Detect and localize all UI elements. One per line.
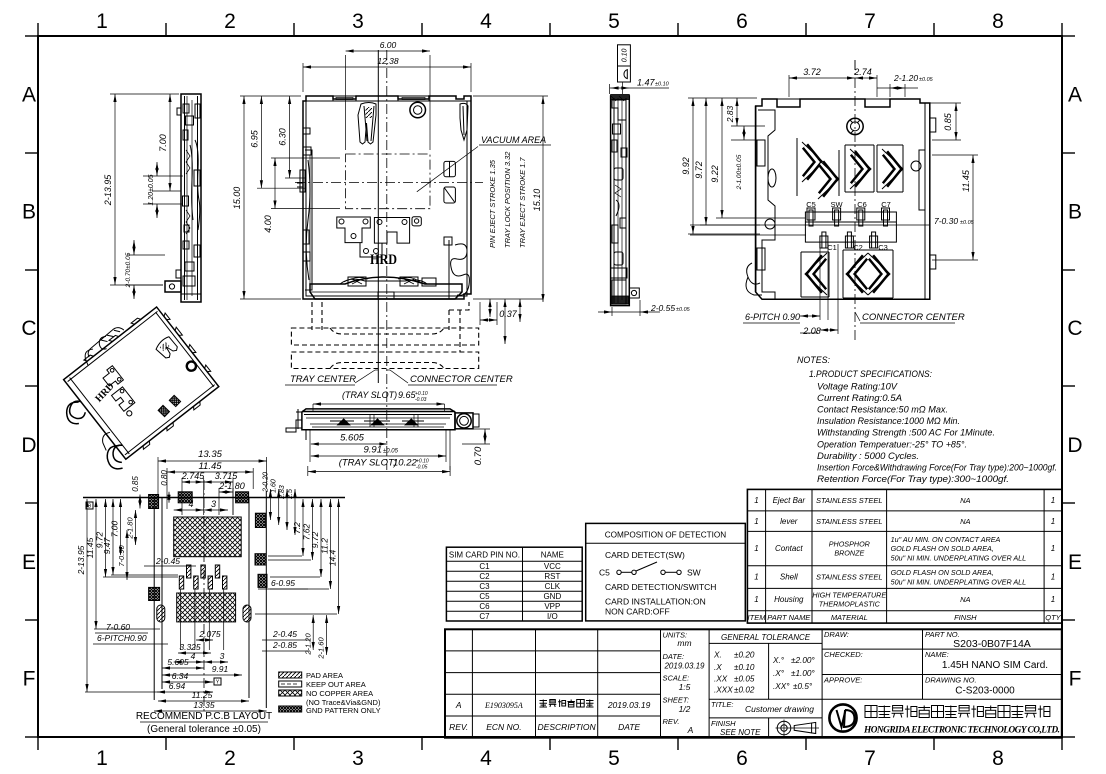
svg-text:11.45: 11.45 (85, 537, 95, 558)
svg-text:TRAY LOCK POSITION 3.32: TRAY LOCK POSITION 3.32 (503, 151, 512, 248)
svg-text:CARD DETECT(SW): CARD DETECT(SW) (605, 550, 685, 560)
svg-text:Operation Temperatuer:-25° T: Operation Temperatuer:-25° TO +85°. (817, 439, 967, 450)
svg-text:TRAY EJECT STROKE 1.7: TRAY EJECT STROKE 1.7 (518, 157, 527, 248)
svg-text:B: B (1068, 200, 1082, 223)
svg-text:(TRAY SLOT): (TRAY SLOT) (339, 458, 397, 469)
svg-text:13.35: 13.35 (198, 449, 222, 460)
svg-text:NAME:: NAME: (925, 650, 949, 659)
svg-text:STAINLESS STEEL: STAINLESS STEEL (816, 517, 883, 526)
svg-text:NA: NA (960, 595, 970, 604)
svg-text:2-1.00±0.05: 2-1.00±0.05 (736, 154, 743, 190)
svg-text:FINSH: FINSH (954, 613, 977, 622)
svg-text:VCC: VCC (544, 562, 561, 571)
svg-text:0.85: 0.85 (943, 112, 953, 131)
svg-text:4: 4 (480, 10, 492, 33)
svg-text:11.45: 11.45 (961, 169, 971, 192)
svg-text:C5: C5 (806, 200, 816, 209)
svg-text:APPROVE:: APPROVE: (823, 676, 862, 685)
svg-text:±0.05: ±0.05 (676, 307, 691, 313)
svg-text:COMPOSITION OF DETECTION: COMPOSITION OF DETECTION (605, 531, 727, 540)
svg-text:2019.03.19: 2019.03.19 (663, 662, 705, 671)
svg-text:A: A (687, 725, 694, 735)
svg-text:9.72: 9.72 (310, 531, 320, 548)
svg-text:2.83: 2.83 (279, 485, 286, 500)
svg-text:15.10: 15.10 (532, 189, 542, 212)
svg-text:2-1.80: 2-1.80 (126, 517, 135, 540)
svg-text:1: 1 (754, 496, 758, 505)
svg-text:SEE NOTE: SEE NOTE (720, 728, 761, 737)
svg-text:SW: SW (687, 568, 701, 578)
svg-text:NOTES:: NOTES: (797, 355, 830, 366)
svg-text:2.74: 2.74 (853, 67, 872, 77)
svg-text:7: 7 (864, 10, 876, 33)
svg-text:6: 6 (736, 747, 748, 770)
svg-text:QTY: QTY (1045, 613, 1061, 622)
svg-text:1: 1 (1051, 496, 1055, 505)
svg-text:NA: NA (960, 517, 970, 526)
svg-text:1: 1 (754, 517, 758, 526)
svg-text:8: 8 (992, 747, 1004, 770)
svg-text:1u" AU MIN. ON CONTACT AR: 1u" AU MIN. ON CONTACT AREA (891, 535, 1001, 544)
svg-text:I/O: I/O (547, 612, 558, 621)
svg-text:4.00: 4.00 (263, 215, 273, 233)
svg-text:THERMOPLASTIC: THERMOPLASTIC (819, 600, 881, 609)
svg-text:ECN NO.: ECN NO. (486, 722, 521, 732)
svg-text:.XX: .XX (714, 675, 728, 684)
svg-text:lever: lever (780, 517, 798, 526)
svg-text:1/2: 1/2 (679, 704, 691, 714)
svg-text:BRONZE: BRONZE (834, 549, 864, 558)
svg-text:C3: C3 (479, 582, 490, 591)
svg-text:±0.05: ±0.05 (734, 675, 755, 684)
svg-text:5.605: 5.605 (340, 433, 364, 444)
svg-text:6.00: 6.00 (380, 40, 397, 50)
svg-text:5: 5 (608, 10, 620, 33)
svg-text:±0.05: ±0.05 (960, 220, 975, 226)
svg-text:DRAWING NO.: DRAWING NO. (925, 676, 977, 685)
svg-text:1: 1 (754, 544, 758, 553)
svg-text:PIN EJECT STROKE 1.35: PIN EJECT STROKE 1.35 (488, 159, 497, 248)
svg-text:C6: C6 (857, 200, 867, 209)
svg-text:NA: NA (960, 496, 970, 505)
svg-text:Customer drawing: Customer drawing (745, 704, 814, 714)
svg-text:±2.00°: ±2.00° (791, 656, 815, 665)
svg-text:3: 3 (352, 10, 364, 33)
svg-text:D: D (21, 434, 36, 457)
svg-text:0.70: 0.70 (473, 446, 484, 465)
svg-text:2-0.85: 2-0.85 (272, 640, 297, 650)
svg-text:Withstanding Strength :500: Withstanding Strength :500 AC For 1Minut… (817, 428, 995, 439)
svg-text:STAINLESS STEEL: STAINLESS STEEL (816, 573, 883, 582)
svg-text:E1903095A: E1903095A (484, 701, 523, 710)
svg-text:-0.03: -0.03 (415, 397, 427, 403)
svg-text:3.72: 3.72 (803, 67, 821, 77)
svg-text:C7: C7 (881, 200, 891, 209)
svg-text:±1.00°: ±1.00° (791, 669, 815, 678)
svg-text:C5: C5 (479, 592, 490, 601)
svg-text:Housing: Housing (774, 595, 804, 604)
svg-text:Voltage Rating:10V: Voltage Rating:10V (817, 382, 899, 393)
svg-text:3: 3 (352, 747, 364, 770)
svg-text:12.38: 12.38 (377, 56, 399, 66)
svg-text:50u" NI MIN. UNDERPLATING: 50u" NI MIN. UNDERPLATING OVER ALL (891, 553, 1027, 562)
svg-text:DESCRIPTION: DESCRIPTION (538, 722, 597, 732)
svg-text:C: C (21, 317, 36, 340)
svg-text:9.47: 9.47 (102, 537, 112, 554)
svg-text:7.00: 7.00 (158, 134, 168, 152)
svg-text:TITLE:: TITLE: (711, 700, 734, 709)
svg-text:2-0.55: 2-0.55 (650, 303, 675, 313)
svg-text:CARD INSTALLATION:ON: CARD INSTALLATION:ON (605, 597, 706, 607)
svg-text:(General tolerance ±0.05): (General tolerance ±0.05) (147, 724, 261, 735)
svg-text:1.60: 1.60 (271, 479, 278, 493)
svg-text:F: F (1069, 668, 1082, 691)
svg-text:A: A (455, 700, 462, 710)
svg-text:3.715: 3.715 (215, 471, 239, 481)
svg-text:3: 3 (211, 499, 216, 509)
svg-text:2-0.20: 2-0.20 (263, 472, 270, 493)
svg-text:GOLD FLASH ON SOLD AREA,: GOLD FLASH ON SOLD AREA, (891, 568, 994, 577)
svg-text:C7: C7 (479, 612, 490, 621)
svg-text:GND: GND (543, 592, 561, 601)
svg-text:TRAY CENTER: TRAY CENTER (290, 374, 356, 385)
svg-text:CARD DETECTION/SWITCH: CARD DETECTION/SWITCH (605, 582, 716, 592)
svg-text:VPP: VPP (544, 602, 560, 611)
svg-text:5.605: 5.605 (167, 657, 189, 667)
svg-text:15.00: 15.00 (232, 187, 242, 210)
svg-text:CLK: CLK (545, 582, 561, 591)
svg-text:Eject Bar: Eject Bar (773, 496, 806, 505)
svg-text:-0.05: -0.05 (416, 465, 428, 471)
svg-text:6.30: 6.30 (278, 128, 288, 146)
svg-text:7-0.30: 7-0.30 (934, 216, 958, 226)
svg-text:E: E (1068, 551, 1082, 574)
svg-text:2-13.95: 2-13.95 (103, 174, 113, 207)
svg-text:6.94: 6.94 (169, 681, 186, 691)
svg-text:6-PITCH 0.90: 6-PITCH 0.90 (745, 312, 800, 322)
svg-text:PART NAME: PART NAME (767, 613, 811, 622)
svg-text:SIM CARD PIN NO.: SIM CARD PIN NO. (449, 551, 520, 560)
svg-text:±0.10: ±0.10 (734, 663, 755, 672)
svg-text:6.95: 6.95 (250, 129, 260, 148)
svg-text:HRD: HRD (370, 252, 397, 268)
svg-text:GND PATTERN ONLY: GND PATTERN ONLY (306, 706, 381, 715)
svg-text:2: 2 (224, 747, 236, 770)
svg-text:X.°: X.° (772, 656, 785, 665)
svg-text:.XXX: .XXX (714, 686, 733, 695)
svg-text:DATE: DATE (618, 722, 640, 732)
svg-text:8: 8 (992, 10, 1004, 33)
svg-text:2-0.45: 2-0.45 (272, 629, 297, 639)
svg-text:1: 1 (1051, 517, 1055, 526)
svg-text:PAD AREA: PAD AREA (306, 671, 343, 680)
svg-text:2.5: 2.5 (287, 489, 294, 500)
svg-text:2.075: 2.075 (198, 629, 221, 639)
svg-text:SW: SW (831, 200, 844, 209)
svg-text:2.08: 2.08 (802, 326, 821, 336)
svg-text:9.91: 9.91 (212, 664, 229, 674)
svg-text:X.: X. (713, 650, 722, 659)
svg-text:C: C (1067, 317, 1082, 340)
svg-text:CONNECTOR CENTER: CONNECTOR CENTER (862, 312, 965, 323)
svg-text:1: 1 (1051, 544, 1055, 553)
svg-text:2-1.20: 2-1.20 (304, 633, 313, 656)
svg-text:±0.05: ±0.05 (919, 77, 934, 83)
svg-text:A: A (1068, 84, 1082, 107)
svg-text:0.37: 0.37 (499, 309, 518, 319)
svg-text:14.4: 14.4 (328, 549, 338, 566)
svg-text:FINISH: FINISH (711, 719, 736, 728)
svg-text:2019.03.19: 2019.03.19 (607, 700, 651, 710)
svg-text:11.25: 11.25 (192, 690, 213, 700)
svg-text:Insertion Force&Withdrawing: Insertion Force&Withdrawing Force(For Tr… (817, 462, 1057, 473)
svg-text:1.45H NANO SIM Card.: 1.45H NANO SIM Card. (942, 660, 1048, 671)
svg-text:±0.5°: ±0.5° (793, 682, 813, 691)
svg-text:C6: C6 (479, 602, 490, 611)
svg-text:1: 1 (96, 10, 108, 33)
svg-text:2: 2 (224, 10, 236, 33)
svg-text:B: B (22, 200, 36, 223)
svg-text:GOLD FLASH ON SOLD AREA,: GOLD FLASH ON SOLD AREA, (891, 544, 994, 553)
svg-text:HONGRIDA ELECTRONIC TECHNOLO: HONGRIDA ELECTRONIC TECHNOLOGY CO,LTD. (863, 726, 1060, 736)
svg-text:ITEM: ITEM (748, 613, 767, 622)
svg-text:7-0.90: 7-0.90 (117, 545, 126, 567)
svg-text:NON CARD:OFF: NON CARD:OFF (605, 607, 670, 617)
svg-text:DRAW:: DRAW: (824, 630, 849, 639)
svg-text:RECOMMEND P.C.B LAYOUT: RECOMMEND P.C.B LAYOUT (136, 711, 272, 722)
svg-text:CONNECTOR CENTER: CONNECTOR CENTER (410, 374, 513, 385)
svg-text:Contact: Contact (775, 544, 803, 553)
svg-text:2-1.80: 2-1.80 (218, 481, 245, 491)
svg-text:2-0.45: 2-0.45 (155, 556, 180, 566)
svg-text:6: 6 (736, 10, 748, 33)
svg-text:9.91: 9.91 (364, 444, 383, 455)
svg-text:Contact Resistance:50 mΩ Ma: Contact Resistance:50 mΩ Max. (817, 405, 948, 416)
svg-text:REV.: REV. (663, 717, 680, 726)
svg-text:E: E (22, 551, 36, 574)
svg-text:NAME: NAME (541, 551, 564, 560)
svg-text:1: 1 (96, 747, 108, 770)
svg-text:C1: C1 (479, 562, 490, 571)
svg-text:±0.10: ±0.10 (655, 82, 670, 88)
svg-text:7: 7 (864, 747, 876, 770)
svg-text:Shell: Shell (780, 573, 798, 582)
svg-text:2.83: 2.83 (725, 105, 735, 123)
svg-text:.XX°: .XX° (773, 682, 790, 691)
svg-text:±0.20: ±0.20 (734, 650, 755, 659)
svg-text:7.00: 7.00 (110, 520, 120, 537)
svg-text:S203-0B07F14A: S203-0B07F14A (953, 638, 1031, 650)
svg-text:6.34: 6.34 (172, 671, 189, 681)
svg-text:D: D (1067, 434, 1082, 457)
svg-text:2-0.70±0.05: 2-0.70±0.05 (125, 252, 132, 288)
svg-text:1: 1 (754, 595, 758, 604)
svg-text:4: 4 (191, 651, 196, 661)
svg-text:1:5: 1:5 (679, 682, 691, 692)
svg-text:1: 1 (754, 573, 758, 582)
svg-text:GENERAL TOLERANCE: GENERAL TOLERANCE (721, 633, 811, 642)
svg-text:A: A (22, 84, 36, 107)
svg-text:.X: .X (714, 663, 722, 672)
svg-text:HIGH TEMPERATURE: HIGH TEMPERATURE (812, 591, 886, 600)
svg-text:6-0.95: 6-0.95 (271, 578, 295, 588)
svg-text:7-0.60: 7-0.60 (106, 622, 130, 632)
svg-text:C1: C1 (827, 243, 837, 252)
svg-text:1.PRODUCT SPECIFICATIONS:: 1.PRODUCT SPECIFICATIONS: (809, 369, 932, 380)
svg-text:0.80: 0.80 (160, 470, 169, 486)
svg-text:Retention Force(For Tray ty: Retention Force(For Tray type):300~1000g… (817, 474, 1009, 485)
svg-text:C-S203-0000: C-S203-0000 (955, 686, 1015, 697)
svg-text:0.10: 0.10 (622, 48, 629, 62)
svg-text:9.72: 9.72 (694, 161, 704, 179)
svg-text:KEEP OUT AREA: KEEP OUT AREA (306, 680, 366, 689)
svg-text:REV.: REV. (449, 722, 468, 732)
svg-text:±0.02: ±0.02 (734, 686, 755, 695)
svg-text:13.35: 13.35 (193, 700, 215, 710)
svg-text:6-PITCH0.90: 6-PITCH0.90 (97, 633, 147, 643)
svg-text:1.20±0.05: 1.20±0.05 (148, 174, 155, 205)
svg-text:C5: C5 (599, 568, 610, 578)
svg-text:9.92: 9.92 (681, 157, 691, 175)
svg-text:1: 1 (1051, 573, 1055, 582)
svg-text:STAINLESS STEEL: STAINLESS STEEL (816, 496, 883, 505)
svg-text:10.22: 10.22 (393, 458, 417, 469)
svg-text:F: F (23, 668, 36, 691)
svg-text:9.65: 9.65 (398, 390, 417, 400)
svg-text:3: 3 (220, 651, 225, 661)
svg-text:C3: C3 (878, 243, 888, 252)
svg-text:DATE:: DATE: (663, 652, 685, 661)
svg-text:4: 4 (188, 499, 193, 509)
svg-text:4: 4 (480, 747, 492, 770)
svg-text:VACUUM AREA: VACUUM AREA (481, 135, 546, 145)
svg-text:C2: C2 (479, 572, 490, 581)
svg-text:MATERIAL: MATERIAL (831, 613, 868, 622)
svg-text:(TRAY SLOT): (TRAY SLOT) (342, 390, 397, 400)
svg-text:9.22: 9.22 (710, 165, 720, 183)
svg-text:50u" NI MIN. UNDERPLATING: 50u" NI MIN. UNDERPLATING OVER ALL (891, 577, 1027, 586)
svg-text:±0.05: ±0.05 (383, 448, 399, 454)
svg-text:mm: mm (677, 638, 691, 648)
svg-text:0.85: 0.85 (131, 476, 140, 492)
svg-text:2.745: 2.745 (181, 471, 206, 481)
svg-text:Durability : 5000 Cycles.: Durability : 5000 Cycles. (817, 451, 919, 462)
svg-text:NO COPPER AREA: NO COPPER AREA (306, 689, 373, 698)
svg-text:2-1.60: 2-1.60 (317, 637, 326, 660)
svg-text:Insulation Resistance:1000 M: Insulation Resistance:1000 MΩ Min. (817, 416, 960, 427)
svg-text:.X°: .X° (773, 669, 785, 678)
svg-text:RST: RST (544, 572, 560, 581)
svg-text:2-1.20: 2-1.20 (893, 73, 918, 83)
svg-text:Current Rating:0.5A: Current Rating:0.5A (817, 393, 902, 404)
svg-text:PHOSPHOR: PHOSPHOR (829, 540, 870, 549)
svg-text:CHECKED:: CHECKED: (824, 650, 863, 659)
svg-text:5: 5 (608, 747, 620, 770)
svg-text:1.47: 1.47 (637, 78, 656, 88)
svg-text:7.2: 7.2 (292, 522, 302, 534)
svg-text:1: 1 (1051, 595, 1055, 604)
